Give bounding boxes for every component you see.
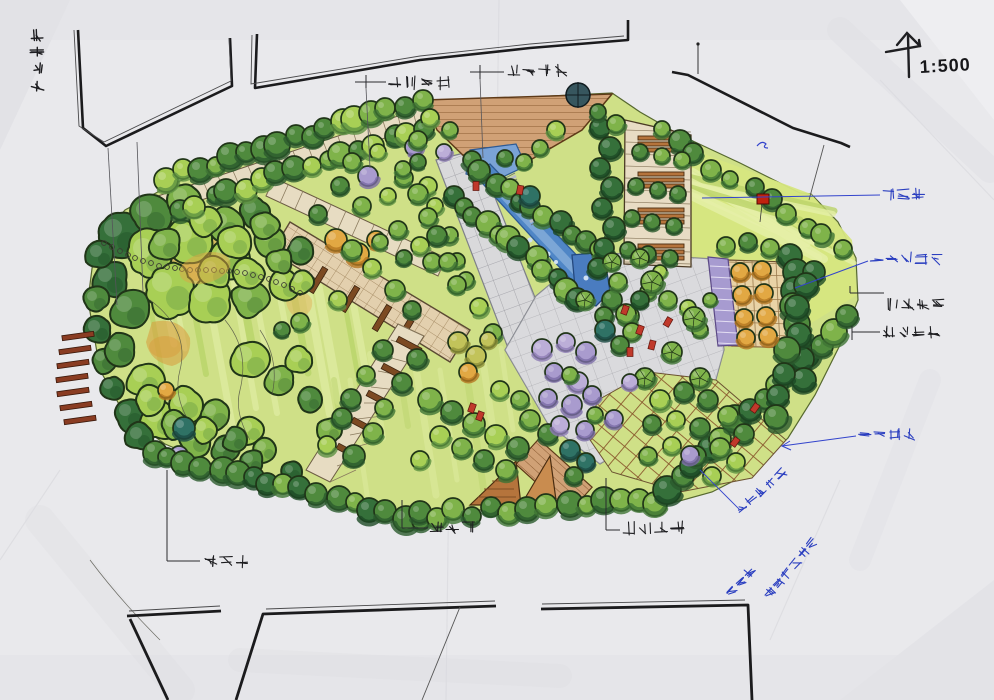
svg-text:1:500: 1:500 <box>919 54 971 77</box>
